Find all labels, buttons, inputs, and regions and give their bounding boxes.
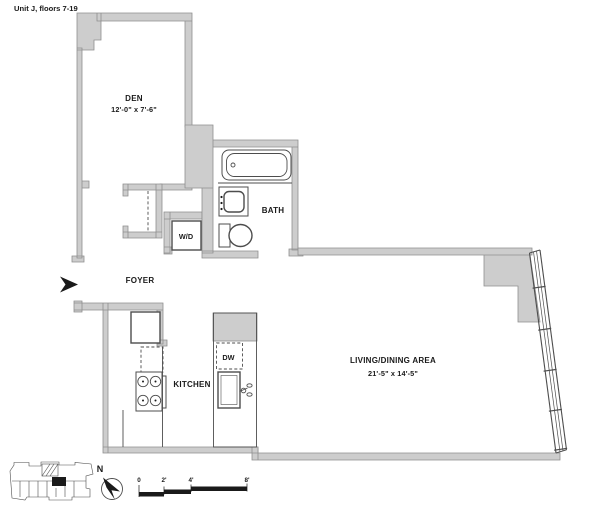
living-dining-label: LIVING/DINING AREA (350, 356, 436, 365)
bathtub-icon (222, 150, 291, 180)
kitchen-sink-icon (218, 372, 240, 408)
bath-label: BATH (262, 206, 285, 215)
floor-plan-page: Unit J, floors 7-19 DEN 12'-0" x 7'-6" B… (0, 0, 600, 511)
bath-fixtures (218, 150, 292, 247)
scale-tick-label: 4' (189, 477, 195, 484)
floor-plan-drawing: Unit J, floors 7-19 DEN 12'-0" x 7'-6" B… (0, 0, 600, 511)
scale-tick-label: 0 (137, 477, 141, 484)
upper-cabinet-dashed (141, 347, 163, 372)
scale-tick-label: 2' (162, 477, 168, 484)
entry-arrow-icon (60, 277, 78, 293)
faucet-dot (220, 196, 222, 198)
key-plan-core-hatch (42, 464, 58, 476)
den-label: DEN (125, 94, 143, 103)
faucet-dot (220, 208, 222, 210)
living-walls (252, 248, 560, 460)
key-plan-unit-highlight (52, 477, 66, 486)
north-arrow-icon: N (97, 464, 123, 500)
page-title: Unit J, floors 7-19 (14, 4, 78, 13)
bath-sink-icon (224, 192, 244, 213)
dishwasher-label: DW (222, 353, 234, 362)
washer-dryer-label: W/D (179, 232, 193, 241)
faucet-dot (220, 202, 222, 204)
key-plan (10, 462, 93, 500)
scale-tick-label: 8' (245, 477, 251, 484)
den-dimensions: 12'-0" x 7'-6" (111, 105, 157, 114)
window-wall (530, 250, 568, 453)
living-dining-dimensions: 21'-5" x 14'-5" (368, 369, 418, 378)
toilet-bowl-icon (229, 225, 252, 247)
peninsula-wall-block (213, 313, 257, 341)
kitchen-label: KITCHEN (173, 380, 210, 389)
foyer-label: FOYER (126, 276, 155, 285)
closet-walls (123, 184, 162, 238)
refrigerator-icon (131, 312, 160, 343)
north-label: N (97, 464, 104, 474)
kitchen-faucet-icon (240, 384, 253, 396)
scale-bar: 0 2' 4' 8' (137, 477, 250, 497)
